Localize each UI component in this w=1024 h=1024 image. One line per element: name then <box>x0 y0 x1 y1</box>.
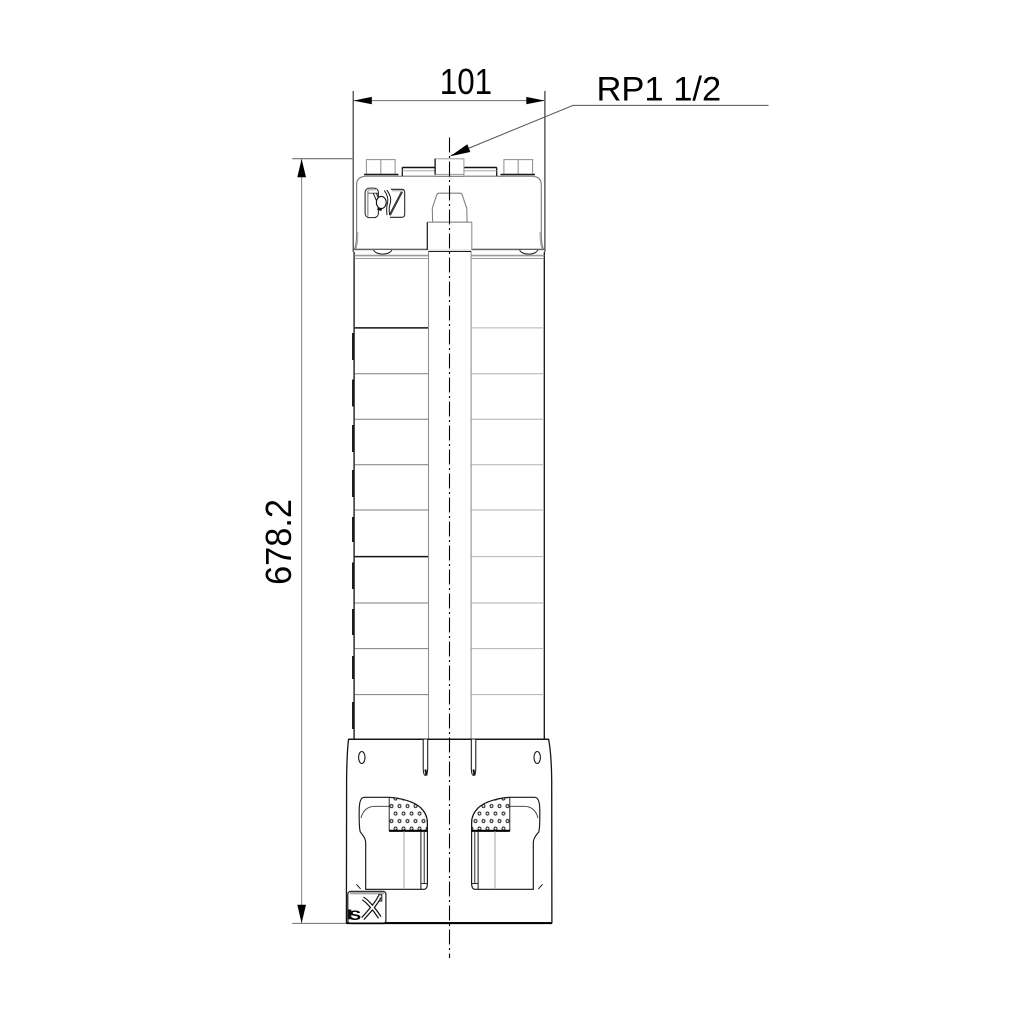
svg-text:101: 101 <box>440 62 492 103</box>
svg-text:RP1 1/2: RP1 1/2 <box>597 70 722 108</box>
svg-text:678.2: 678.2 <box>258 499 299 585</box>
